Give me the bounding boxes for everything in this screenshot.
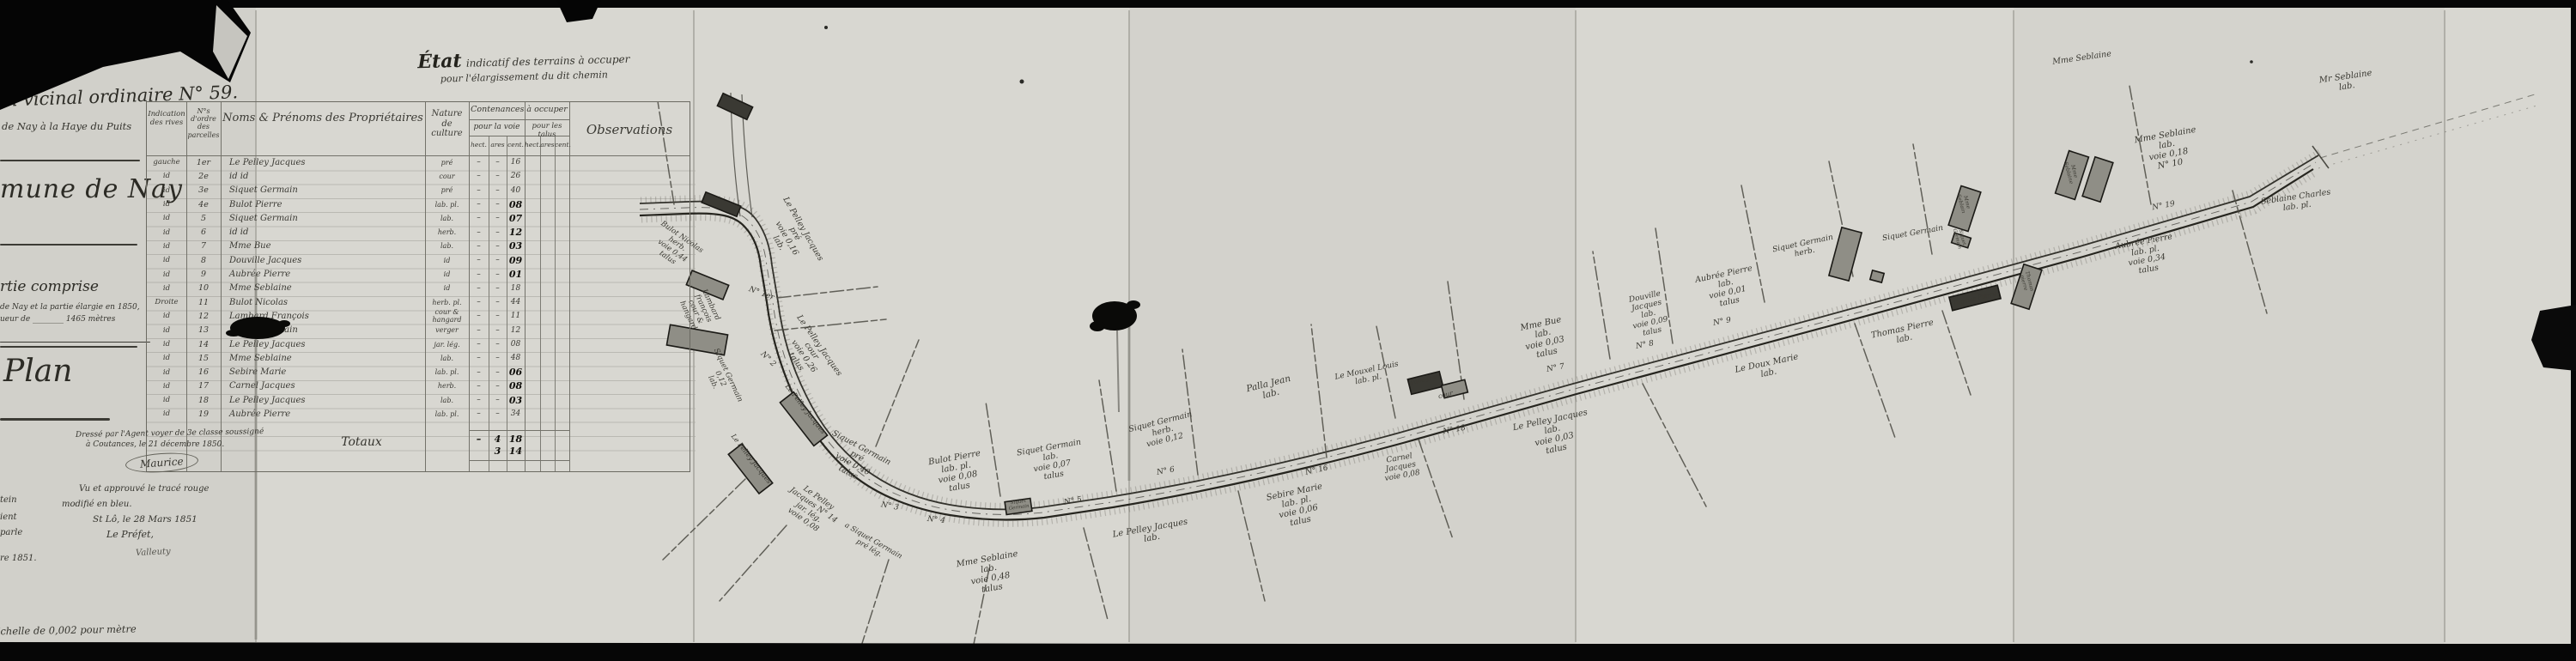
table-row: id 5 Siquet Germain lab. – – 07 <box>147 211 690 225</box>
parcel-label: N° 2 <box>758 349 778 369</box>
cell-voie-ares: – <box>489 284 507 293</box>
building <box>717 94 752 120</box>
parcel-label: N° 4 <box>926 515 945 525</box>
cell-proprietaire: Aubrée Pierre <box>221 409 425 419</box>
building <box>1870 270 1884 282</box>
cell-voie-cent: 16 <box>507 158 525 167</box>
edge-fragment-2: ient <box>0 512 17 522</box>
cell-voie-ares: – <box>489 242 507 251</box>
parcel-label: cour <box>1437 389 1454 400</box>
table-row: id 3e Siquet Germain pré – – 40 <box>147 184 690 197</box>
cell-voie-cent: 26 <box>507 172 525 180</box>
cell-numero: 12 <box>186 312 221 321</box>
section-line-1: de Nay et la partie élargie en 1850, <box>0 303 140 312</box>
divider-rule-1 <box>0 160 140 161</box>
cell-numero: 13 <box>186 325 221 335</box>
road <box>640 93 2540 524</box>
cell-voie-hect: – <box>469 396 489 404</box>
parcel-label: Siquet Germainprévoie 0,40talus <box>817 428 892 492</box>
header-talus: pour les talus <box>525 123 569 140</box>
cell-nature: id <box>425 270 469 278</box>
table-row: Droite 11 Bulot Nicolas herb. pl. – – 44 <box>147 295 690 309</box>
drafted-line-2: à Coutances, le 21 décembre 1850. <box>86 440 224 449</box>
cell-numero: 19 <box>186 409 221 419</box>
cell-proprietaire: Carnel Jacques <box>221 381 425 391</box>
parcel-label: N° 19 <box>2151 200 2176 213</box>
header-rives: Indication des rives <box>147 111 186 128</box>
cell-proprietaire: Mme Seblaine <box>221 283 425 293</box>
parcel-label: N° 6 <box>1155 465 1176 477</box>
cell-voie-ares: – <box>489 200 507 209</box>
parcel-label: CarnelJacquesvoie 0,08 <box>1381 451 1421 483</box>
cell-voie-cent: 34 <box>507 409 525 418</box>
cell-voie-cent: 18 <box>507 284 525 293</box>
cell-rive: id <box>147 409 186 418</box>
parcel-boundary <box>876 340 919 446</box>
cell-voie-hect: – <box>469 284 489 293</box>
parcel-label: Siquet Germainlab.voie 0,07talus <box>1016 438 1086 486</box>
agent-signature: Maurice <box>125 451 198 475</box>
cell-nature: pré <box>425 159 469 167</box>
cell-numero: 1er <box>186 158 221 167</box>
table-title-rest: indicatif des terrains à occuper <box>466 53 630 70</box>
parcel-label: N° 3 <box>879 500 900 512</box>
parcel-label: Aubrée Pierrelab.voie 0,01talus <box>1693 264 1759 312</box>
edge-fragment-4: re 1851. <box>0 554 37 563</box>
cell-voie-ares: – <box>489 256 507 264</box>
parcel-boundary <box>1593 252 1610 359</box>
cell-voie-hect: – <box>469 298 489 306</box>
cell-numero: 4e <box>186 200 221 209</box>
table-row: id 7 Mme Bue lab. – – 03 <box>147 240 690 253</box>
road-edge-south <box>640 169 2313 519</box>
cell-nature: cour & hangard <box>425 308 469 324</box>
parcel-label: Sebire Marielab. pl.voie 0,06talus <box>1266 482 1329 531</box>
totals-cent-1: 18 <box>507 434 525 445</box>
cell-voie-cent: 44 <box>507 298 525 306</box>
parcel-boundary <box>2129 86 2151 204</box>
unit-hect-talus: hect. <box>525 142 540 149</box>
parcel-boundary <box>775 319 886 330</box>
header-voie: pour la voie <box>469 123 525 131</box>
parcel-boundary <box>1942 311 1971 395</box>
parcel-boundary <box>1419 440 1453 539</box>
cell-nature: verger <box>425 326 469 334</box>
plan-heading: Plan <box>3 354 72 389</box>
parcel-boundary <box>1311 324 1327 458</box>
cell-numero: 14 <box>186 340 221 349</box>
cell-voie-ares: – <box>489 340 507 349</box>
parcel-boundary <box>1238 491 1265 601</box>
approved-line-2: modifié en bleu. <box>62 500 132 509</box>
cell-voie-hect: – <box>469 409 489 418</box>
table-row: id 18 Le Pelley Jacques lab. – – 03 <box>147 393 690 407</box>
cell-voie-cent: 03 <box>507 395 525 406</box>
parcel-label: Bulot Pierrelab. pl.voie 0,08talus <box>927 449 987 497</box>
totals-label: Totaux <box>276 435 447 449</box>
cell-voie-ares: – <box>489 368 507 377</box>
cell-rive: id <box>147 312 186 320</box>
totals-cent-2: 14 <box>507 446 525 457</box>
unit-ares-voie: ares <box>489 142 507 149</box>
cell-nature: pré <box>425 186 469 194</box>
cell-proprietaire: Lambard François <box>221 312 425 321</box>
cell-nature: id <box>425 257 469 264</box>
parcel-label: Le PelleyJacques N° 14jar. lég.voie 0,08 <box>776 477 844 539</box>
parcel-label: Mme Buelab.voie 0,03talus <box>1519 315 1569 362</box>
cell-proprietaire: Le Pelley Jacques <box>221 396 425 405</box>
parcel-boundary <box>859 560 889 654</box>
approved-place-date: St Lô, le 28 Mars 1851 <box>93 514 197 525</box>
table-row: id 13 Siquet Germain verger – – 12 <box>147 324 690 337</box>
cell-voie-hect: – <box>469 214 489 222</box>
road-continuation-dashed <box>2320 94 2535 158</box>
scale-note: Échelle de 0,002 pour mètre <box>0 623 137 638</box>
table-row: id 2e id id cour – – 26 <box>147 169 690 183</box>
cell-nature: lab. <box>425 242 469 250</box>
road-hatch-north <box>641 152 2319 506</box>
totals-line-top <box>469 430 569 431</box>
cell-rive: id <box>147 396 186 404</box>
cell-nature: herb. pl. <box>425 299 469 306</box>
cell-rive: id <box>147 340 186 349</box>
unit-cent-voie: cent. <box>507 142 525 149</box>
cell-proprietaire: id id <box>221 172 425 181</box>
cell-voie-hect: – <box>469 312 489 320</box>
header-nature: Nature de culture <box>425 109 469 139</box>
cell-voie-ares: – <box>489 354 507 362</box>
cell-voie-hect: – <box>469 270 489 279</box>
cell-numero: 7 <box>186 241 221 251</box>
parcel-label: Siquet Germainherb.voie 0,12 <box>1127 409 1197 452</box>
parcel-label: Mme Seblainelab.voie 0,48talus <box>955 549 1024 599</box>
cell-voie-cent: 08 <box>507 380 525 391</box>
cell-voie-cent: 40 <box>507 186 525 195</box>
cell-voie-ares: – <box>489 396 507 404</box>
cell-proprietaire: Douville Jacques <box>221 256 425 265</box>
plan-parcels-layer: Bulot Nicolasherb.voie 0,44talusLe Pelle… <box>644 49 2374 661</box>
header-noms: Noms & Prénoms des Propriétaires <box>221 112 425 125</box>
parcel-boundary <box>777 287 878 298</box>
cell-voie-cent: 01 <box>507 269 525 280</box>
edge-fragment-3: parle <box>0 528 22 537</box>
road-hatch-south <box>641 173 2315 524</box>
cell-voie-hect: – <box>469 256 489 264</box>
cell-voie-hect: – <box>469 368 489 377</box>
cell-rive: id <box>147 172 186 180</box>
parcel-label: Mr Seblainelab. <box>2318 69 2374 95</box>
parcel-label: N° 7 <box>1545 362 1565 374</box>
cell-nature: herb. <box>425 228 469 236</box>
cell-rive: id <box>147 256 186 264</box>
cell-voie-hect: – <box>469 340 489 349</box>
section-line-2: ueur de ________ 1465 mètres <box>0 315 115 324</box>
table-row: id 16 Sebire Marie lab. pl. – – 06 <box>147 365 690 379</box>
cell-numero: 3e <box>186 185 221 195</box>
parcel-label: Mme Seblaine <box>2051 49 2112 67</box>
parcel-label: Le Doux Marielab. <box>1734 352 1801 385</box>
road-continuation-faint <box>2318 105 2540 168</box>
acquisition-table: Indication des rives N°s d'ordre des par… <box>146 101 690 472</box>
cell-voie-cent: 07 <box>507 213 525 224</box>
cell-numero: 6 <box>186 227 221 237</box>
cell-rive: id <box>147 242 186 251</box>
cell-proprietaire: id id <box>221 227 425 237</box>
cell-rive: id <box>147 228 186 237</box>
cell-nature: cour <box>425 173 469 180</box>
cell-voie-cent: 08 <box>507 340 525 349</box>
table-row: id 19 Aubrée Pierre lab. pl. – – 34 <box>147 407 690 421</box>
parcel-label: Siquet Germainherb. <box>1771 233 1836 264</box>
cell-voie-ares: – <box>489 382 507 391</box>
parcel-label: Siquet Germain0,12lab. <box>696 347 744 410</box>
header-line <box>469 119 569 120</box>
route-subtitle: de Nay à la Haye du Puits <box>2 120 131 132</box>
cell-voie-ares: – <box>489 172 507 180</box>
cell-rive: id <box>147 270 186 279</box>
cell-voie-ares: – <box>489 326 507 335</box>
divider-rule-2 <box>0 244 137 246</box>
table-row: id 12 Lambard François cour & hangard – … <box>147 309 690 323</box>
parcel-boundary <box>1084 528 1108 620</box>
cell-voie-cent: 08 <box>507 199 525 210</box>
parcel-boundary <box>663 479 745 560</box>
parcel-label: Thomas Pierrelab. <box>1870 318 1936 349</box>
cell-voie-hect: – <box>469 172 489 180</box>
cell-proprietaire: Sebire Marie <box>221 367 425 377</box>
parcel-label: Le Pelley Jacquesprévoie 0,16lab. <box>756 195 825 277</box>
parcel-label: Palla Jeanlab. <box>1244 373 1294 404</box>
cell-numero: 15 <box>186 354 221 363</box>
cell-proprietaire: Bulot Nicolas <box>221 298 425 307</box>
cell-voie-cent: 48 <box>507 354 525 362</box>
cell-proprietaire: Aubrée Pierre <box>221 270 425 279</box>
parcel-boundary <box>1643 384 1706 506</box>
cell-rive: id <box>147 354 186 362</box>
cell-nature: lab. pl. <box>425 201 469 209</box>
cell-voie-cent: 09 <box>507 255 525 266</box>
cell-voie-ares: – <box>489 270 507 279</box>
parcel-boundary <box>1855 324 1895 438</box>
parcel-boundary <box>720 525 787 601</box>
road-centerline-trace <box>640 162 2316 514</box>
cell-rive: id <box>147 382 186 391</box>
cell-proprietaire: Mme Bue <box>221 241 425 251</box>
cell-voie-ares: – <box>489 186 507 195</box>
cell-proprietaire: Le Pelley Jacques <box>221 158 425 167</box>
totals-hect: – <box>469 434 489 445</box>
parcel-label: Le Pelley Jacqueslab. <box>1111 517 1190 549</box>
cell-nature: lab. <box>425 355 469 362</box>
table-row: id 9 Aubrée Pierre id – – 01 <box>147 267 690 281</box>
cell-rive: gauche <box>147 158 186 167</box>
plan-underline <box>0 418 110 421</box>
parcel-label: N° 16 <box>1304 464 1329 477</box>
cell-voie-ares: – <box>489 298 507 306</box>
building <box>1829 227 1862 281</box>
cell-nature: lab. pl. <box>425 368 469 376</box>
cell-voie-cent: 03 <box>507 240 525 252</box>
cell-rive: id <box>147 368 186 377</box>
divider-rule-3b <box>0 346 137 348</box>
unit-ares-talus: ares <box>540 142 555 149</box>
cell-rive: Droite <box>147 298 186 306</box>
cell-voie-cent: 12 <box>507 227 525 238</box>
unit-cent-talus: cent. <box>555 142 569 149</box>
cell-rive: id <box>147 326 186 335</box>
parcel-label: Aubrée Pierrelab. pl.voie 0,34talus <box>2113 232 2178 279</box>
cell-rive: id <box>147 186 186 195</box>
cell-voie-hect: – <box>469 326 489 335</box>
cell-voie-ares: – <box>489 158 507 167</box>
cell-numero: 17 <box>186 381 221 391</box>
parcel-label: a Siquet Germainpré lég. <box>839 521 903 568</box>
scanned-road-plan-document: Bulot Nicolasherb.voie 0,44talusLe Pelle… <box>0 0 2576 661</box>
cell-numero: 16 <box>186 367 221 377</box>
parcel-label: Mme Seblainelab.voie 0,18N° 10 <box>2133 125 2202 175</box>
totals-ares-2: 3 <box>489 446 507 457</box>
totals-line-bottom <box>469 460 569 461</box>
parcel-boundary <box>2233 191 2267 313</box>
cell-rive: id <box>147 284 186 293</box>
cell-proprietaire: Siquet Germain <box>221 185 425 195</box>
cell-nature: lab. pl. <box>425 410 469 418</box>
cell-proprietaire: Siquet Germain <box>221 325 425 335</box>
cell-voie-ares: – <box>489 409 507 418</box>
cell-voie-cent: 11 <box>507 312 525 320</box>
parcel-label: Siquet Germain <box>1881 224 1944 243</box>
cell-numero: 9 <box>186 270 221 279</box>
parcel-label: N° 1er <box>747 285 776 302</box>
cell-voie-cent: 06 <box>507 367 525 378</box>
table-row: id 17 Carnel Jacques herb. – – 08 <box>147 379 690 393</box>
road-edge-north <box>640 155 2318 509</box>
cell-voie-hect: – <box>469 382 489 391</box>
divider-rule-3a <box>0 342 150 343</box>
parcel-boundary <box>986 402 1000 496</box>
cell-nature: id <box>425 284 469 292</box>
cell-proprietaire: Siquet Germain <box>221 214 425 223</box>
cell-rive: id <box>147 214 186 222</box>
section-heading: rtie comprise <box>0 278 99 295</box>
cell-numero: 11 <box>186 298 221 307</box>
parcel-label: N° 8 <box>1634 339 1655 351</box>
cell-numero: 10 <box>186 283 221 293</box>
cell-voie-ares: – <box>489 214 507 222</box>
table-row: id 4e Bulot Pierre lab. pl. – – 08 <box>147 197 690 211</box>
cell-voie-hect: – <box>469 200 489 209</box>
parcel-boundary <box>1913 144 1932 254</box>
cell-voie-ares: – <box>489 312 507 320</box>
unit-hect-voie: hect. <box>469 142 489 149</box>
table-row: gauche 1er Le Pelley Jacques pré – – 16 <box>147 155 690 169</box>
table-row: id 8 Douville Jacques id – – 09 <box>147 253 690 267</box>
header-observations: Observations <box>569 123 690 137</box>
cell-voie-hect: – <box>469 158 489 167</box>
approved-line-1: Vu et approuvé le tracé rouge <box>79 484 209 494</box>
cell-numero: 5 <box>186 214 221 223</box>
cell-proprietaire: Mme Seblaine <box>221 354 425 363</box>
table-row: id 15 Mme Seblaine lab. – – 48 <box>147 351 690 365</box>
cell-proprietaire: Bulot Pierre <box>221 200 425 209</box>
cell-numero: 8 <box>186 256 221 265</box>
cell-voie-hect: – <box>469 228 489 237</box>
totals-ares-1: 4 <box>489 434 507 445</box>
parcel-label: DouvilleJacqueslab.voie 0,09talus <box>1626 289 1671 340</box>
parcel-label: N° 5 <box>1062 495 1083 507</box>
cell-rive: id <box>147 200 186 209</box>
table-row: id 14 Le Pelley Jacques jar. lég. – – 08 <box>147 337 690 351</box>
parcel-label: Le Pelley Jacqueslab.voie 0,03talus <box>1511 408 1595 462</box>
cell-proprietaire: Le Pelley Jacques <box>221 340 425 349</box>
edge-fragment-1: tein <box>0 495 17 505</box>
parcel-boundary <box>1099 380 1116 491</box>
prefet-title: Le Préfet, <box>106 529 154 540</box>
parcel-label: N° 9 <box>1711 316 1732 328</box>
header-ordre: N°s d'ordre des parcelles <box>186 107 221 139</box>
table-title-word: État <box>417 50 462 73</box>
cell-numero: 18 <box>186 396 221 405</box>
prefet-signature: Valleuty <box>136 547 171 558</box>
cell-voie-hect: – <box>469 354 489 362</box>
cell-nature: herb. <box>425 382 469 390</box>
cell-nature: lab. <box>425 397 469 404</box>
table-rows: gauche 1er Le Pelley Jacques pré – – 16 … <box>147 155 690 421</box>
cell-voie-hect: – <box>469 242 489 251</box>
parcel-label: Seblaine Charleslab. pl. <box>2260 187 2332 215</box>
cell-voie-ares: – <box>489 228 507 237</box>
cell-nature: lab. <box>425 215 469 222</box>
parcel-label: Le Mouxel Louislab. pl. <box>1334 360 1401 391</box>
header-contenances: Contenances à occuper <box>469 106 569 115</box>
table-row: id 10 Mme Seblaine id – – 18 <box>147 282 690 295</box>
cell-voie-cent: 12 <box>507 326 525 335</box>
cell-nature: jar. lég. <box>425 341 469 349</box>
cell-numero: 2e <box>186 172 221 181</box>
table-row: id 6 id id herb. – – 12 <box>147 225 690 239</box>
cell-voie-hect: – <box>469 186 489 195</box>
